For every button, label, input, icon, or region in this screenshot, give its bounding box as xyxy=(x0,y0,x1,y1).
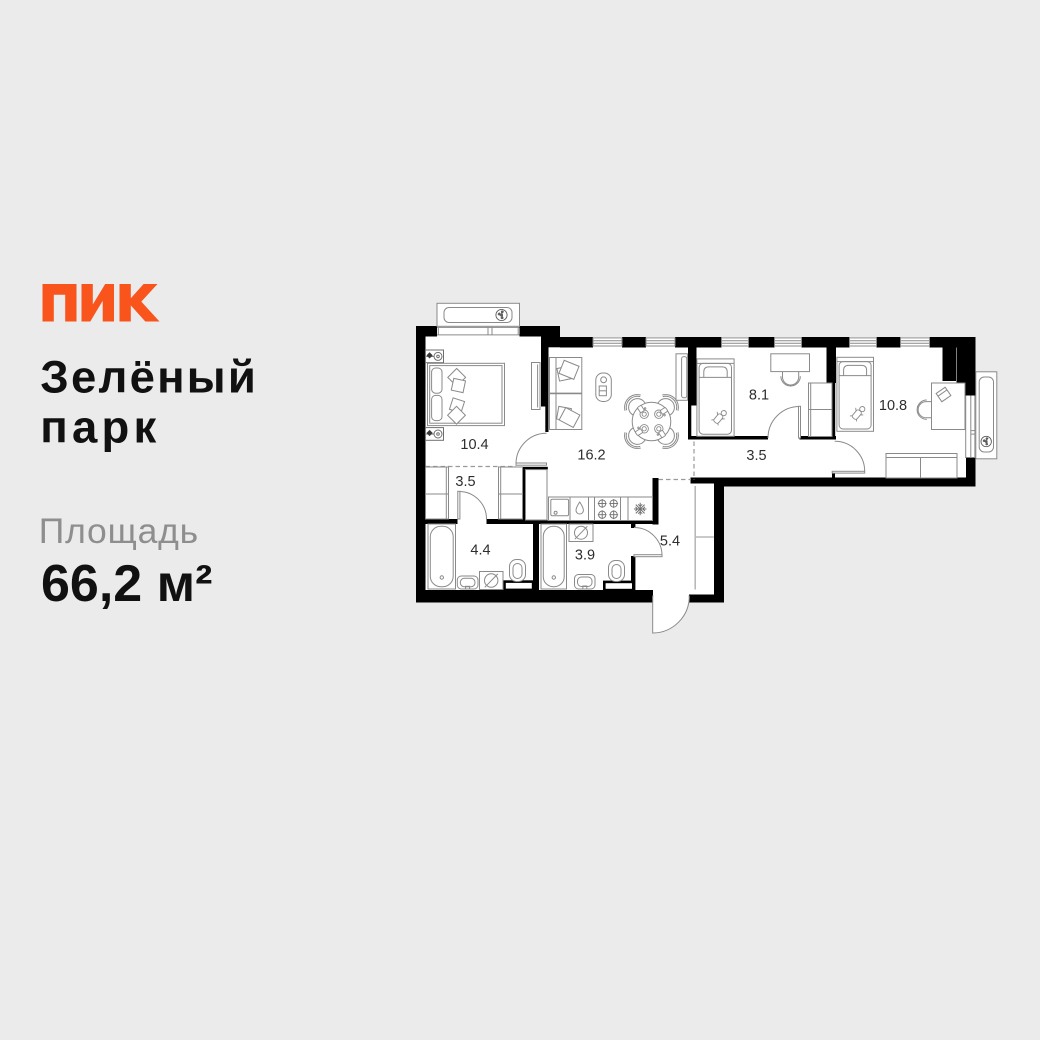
svg-text:Площадь: Площадь xyxy=(39,511,199,551)
svg-text:10.4: 10.4 xyxy=(460,437,488,453)
svg-text:10.8: 10.8 xyxy=(879,398,907,414)
svg-text:3.9: 3.9 xyxy=(575,548,595,564)
svg-text:8.1: 8.1 xyxy=(749,388,769,404)
svg-text:16.2: 16.2 xyxy=(577,448,605,464)
svg-text:4.4: 4.4 xyxy=(470,543,490,559)
svg-text:3.5: 3.5 xyxy=(455,474,475,490)
svg-text:66,2 м²: 66,2 м² xyxy=(41,555,212,613)
svg-text:парк: парк xyxy=(40,401,160,452)
svg-text:3.5: 3.5 xyxy=(746,448,766,464)
svg-text:5.4: 5.4 xyxy=(660,533,680,549)
svg-text:Зелёный: Зелёный xyxy=(40,351,258,402)
